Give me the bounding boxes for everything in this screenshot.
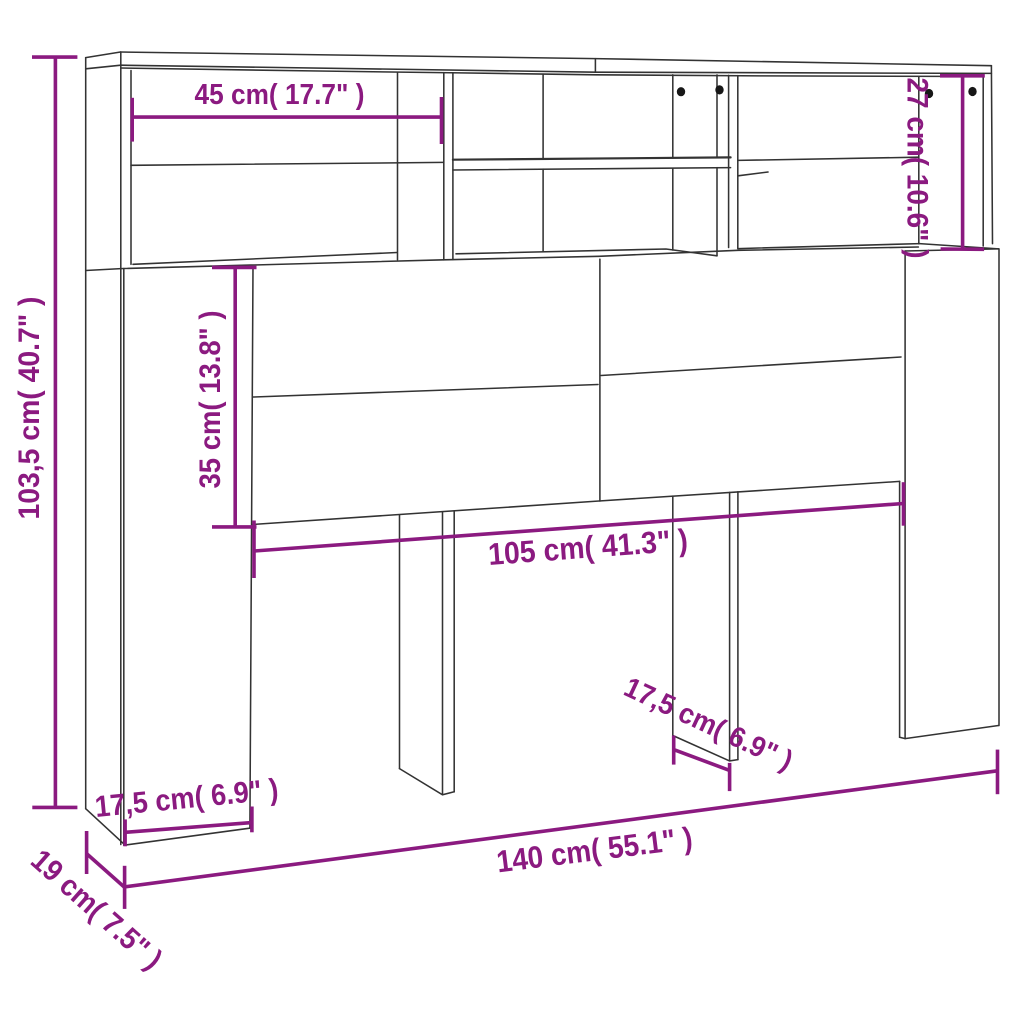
svg-text:105 cm( 41.3" ): 105 cm( 41.3" ) bbox=[487, 522, 689, 572]
svg-text:103,5 cm( 40.7" ): 103,5 cm( 40.7" ) bbox=[13, 297, 46, 520]
svg-text:35 cm( 13.8" ): 35 cm( 13.8" ) bbox=[194, 311, 227, 489]
svg-text:45 cm( 17.7" ): 45 cm( 17.7" ) bbox=[195, 79, 365, 111]
svg-text:27 cm( 10.6" ): 27 cm( 10.6" ) bbox=[901, 78, 934, 259]
svg-text:140 cm( 55.1" ): 140 cm( 55.1" ) bbox=[495, 820, 695, 879]
